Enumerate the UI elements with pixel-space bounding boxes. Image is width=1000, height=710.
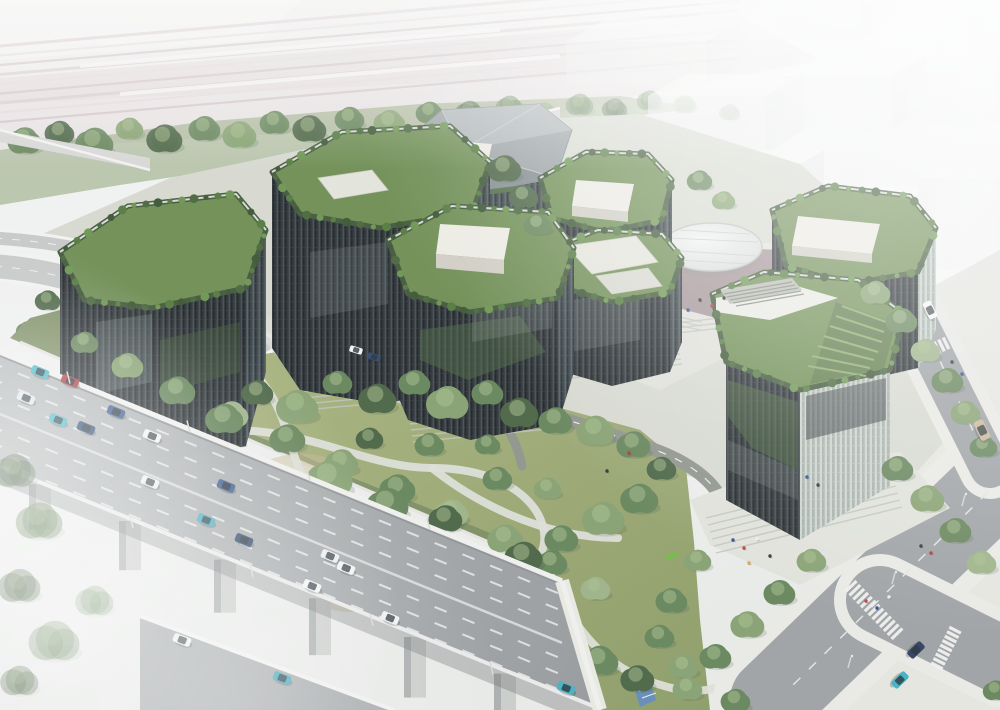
atmosphere <box>0 0 1000 710</box>
green-campus-aerial-rendering <box>0 0 1000 710</box>
global-haze <box>0 0 1000 710</box>
architectural-rendering-stage <box>0 0 1000 710</box>
